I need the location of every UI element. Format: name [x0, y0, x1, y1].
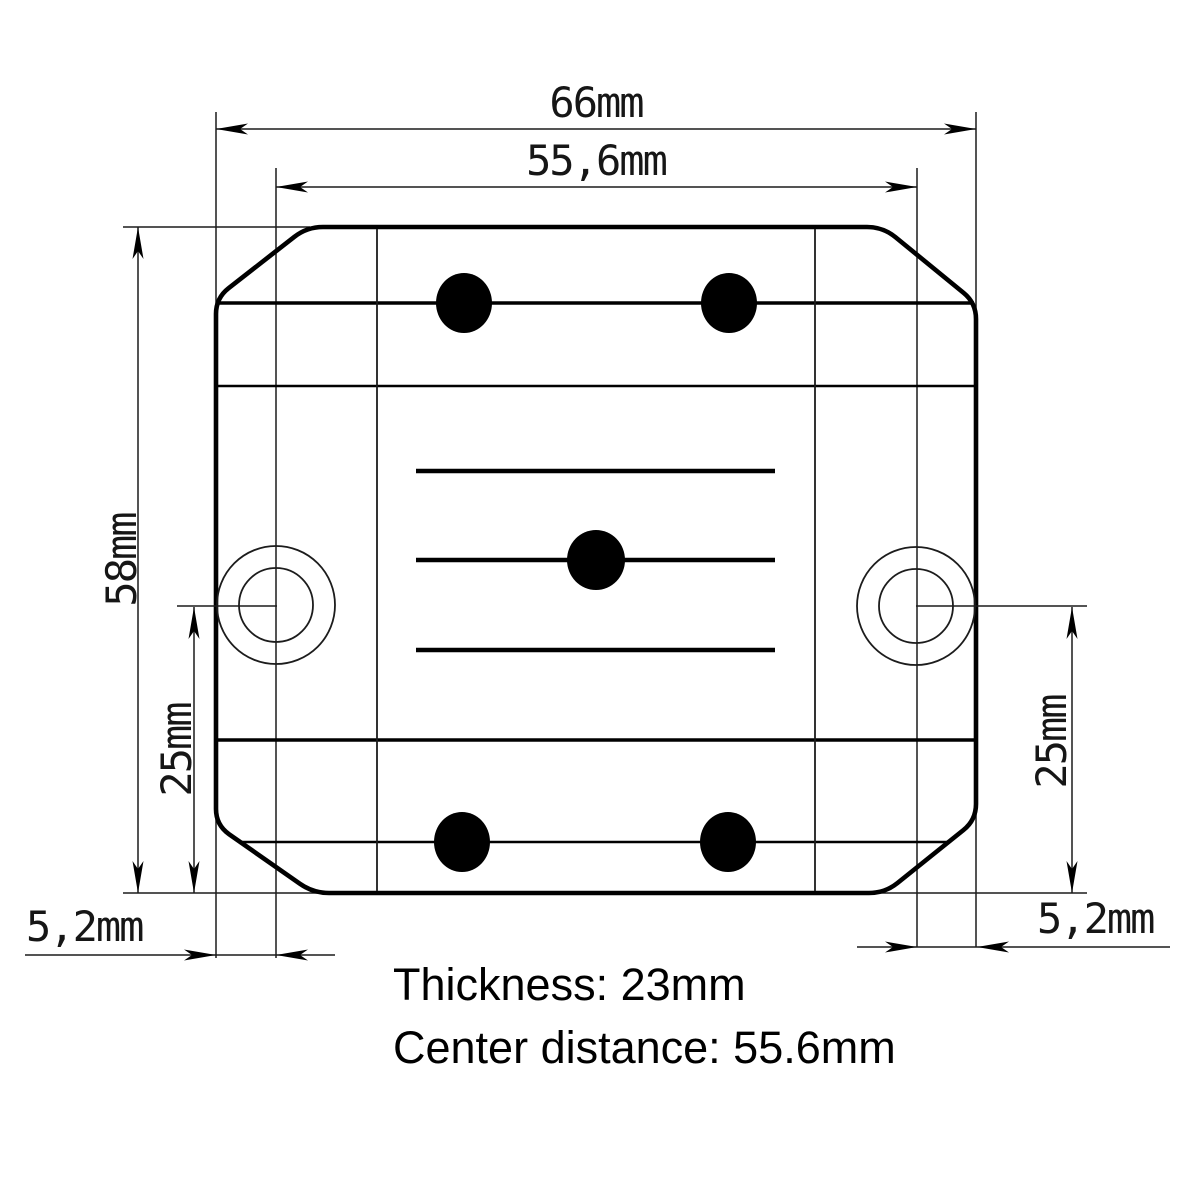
- center-screw-dot: [567, 530, 625, 590]
- dim-hole-spacing-label: 55,6mm: [526, 136, 666, 185]
- dim-overall-height-label: 58mm: [97, 513, 146, 607]
- terminal-dot-bottom-left: [434, 812, 490, 872]
- note-center-distance: Center distance: 55.6mm: [393, 1022, 896, 1073]
- dimension-drawing: 66mm 55,6mm 58mm 25mm 25mm: [0, 0, 1200, 1200]
- terminal-dot-top-right: [701, 273, 757, 333]
- dim-hole-offset-right-label: 25mm: [1027, 695, 1076, 789]
- terminal-dot-bottom-right: [700, 812, 756, 872]
- note-thickness: Thickness: 23mm: [393, 959, 746, 1010]
- technical-drawing-page: 66mm 55,6mm 58mm 25mm 25mm: [0, 0, 1200, 1200]
- dim-overall-width-label: 66mm: [549, 78, 643, 127]
- dim-edge-to-hole-left-label: 5,2mm: [26, 902, 143, 951]
- dim-hole-offset-left-label: 25mm: [152, 703, 201, 797]
- dim-edge-to-hole-right-label: 5,2mm: [1037, 894, 1154, 943]
- terminal-dot-top-left: [436, 273, 492, 333]
